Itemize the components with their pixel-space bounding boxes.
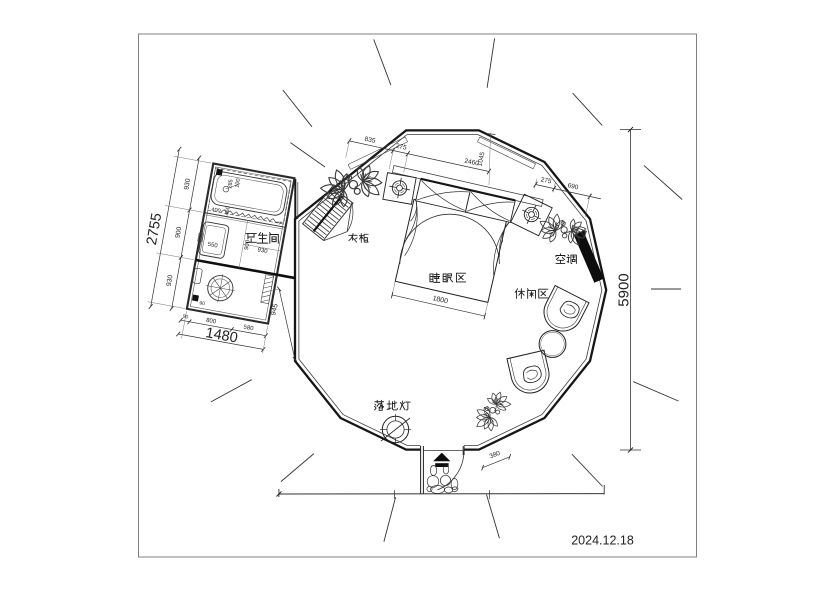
svg-text:400: 400 <box>211 207 221 215</box>
svg-text:550: 550 <box>207 242 219 250</box>
svg-text:100: 100 <box>234 178 242 188</box>
svg-text:5900: 5900 <box>616 273 633 306</box>
svg-text:1800: 1800 <box>432 295 449 305</box>
svg-text:930: 930 <box>166 274 175 287</box>
svg-text:1045: 1045 <box>477 151 487 167</box>
svg-text:275: 275 <box>540 176 552 185</box>
svg-text:90: 90 <box>182 314 189 321</box>
svg-text:580: 580 <box>243 325 255 333</box>
svg-text:275: 275 <box>395 143 407 152</box>
svg-text:2024.12.18: 2024.12.18 <box>571 534 634 548</box>
svg-text:380: 380 <box>489 450 502 461</box>
svg-text:930: 930 <box>257 247 269 255</box>
svg-text:2755: 2755 <box>144 212 165 247</box>
svg-text:90: 90 <box>199 300 206 307</box>
svg-text:690: 690 <box>567 182 579 191</box>
svg-text:900: 900 <box>174 226 183 239</box>
svg-text:1480: 1480 <box>204 325 239 347</box>
svg-text:945: 945 <box>270 303 279 316</box>
svg-text:930: 930 <box>183 178 192 191</box>
svg-text:900: 900 <box>244 239 252 251</box>
svg-text:835: 835 <box>364 136 376 145</box>
